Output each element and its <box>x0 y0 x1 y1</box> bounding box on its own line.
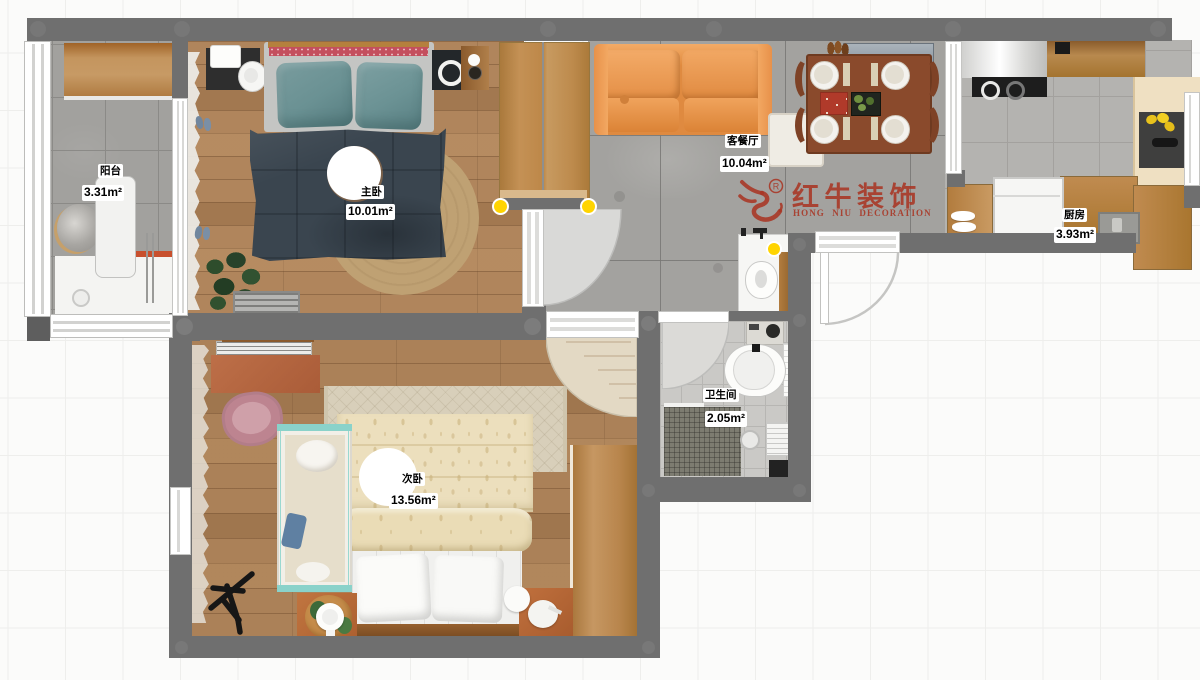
svg-text:R: R <box>773 182 780 192</box>
